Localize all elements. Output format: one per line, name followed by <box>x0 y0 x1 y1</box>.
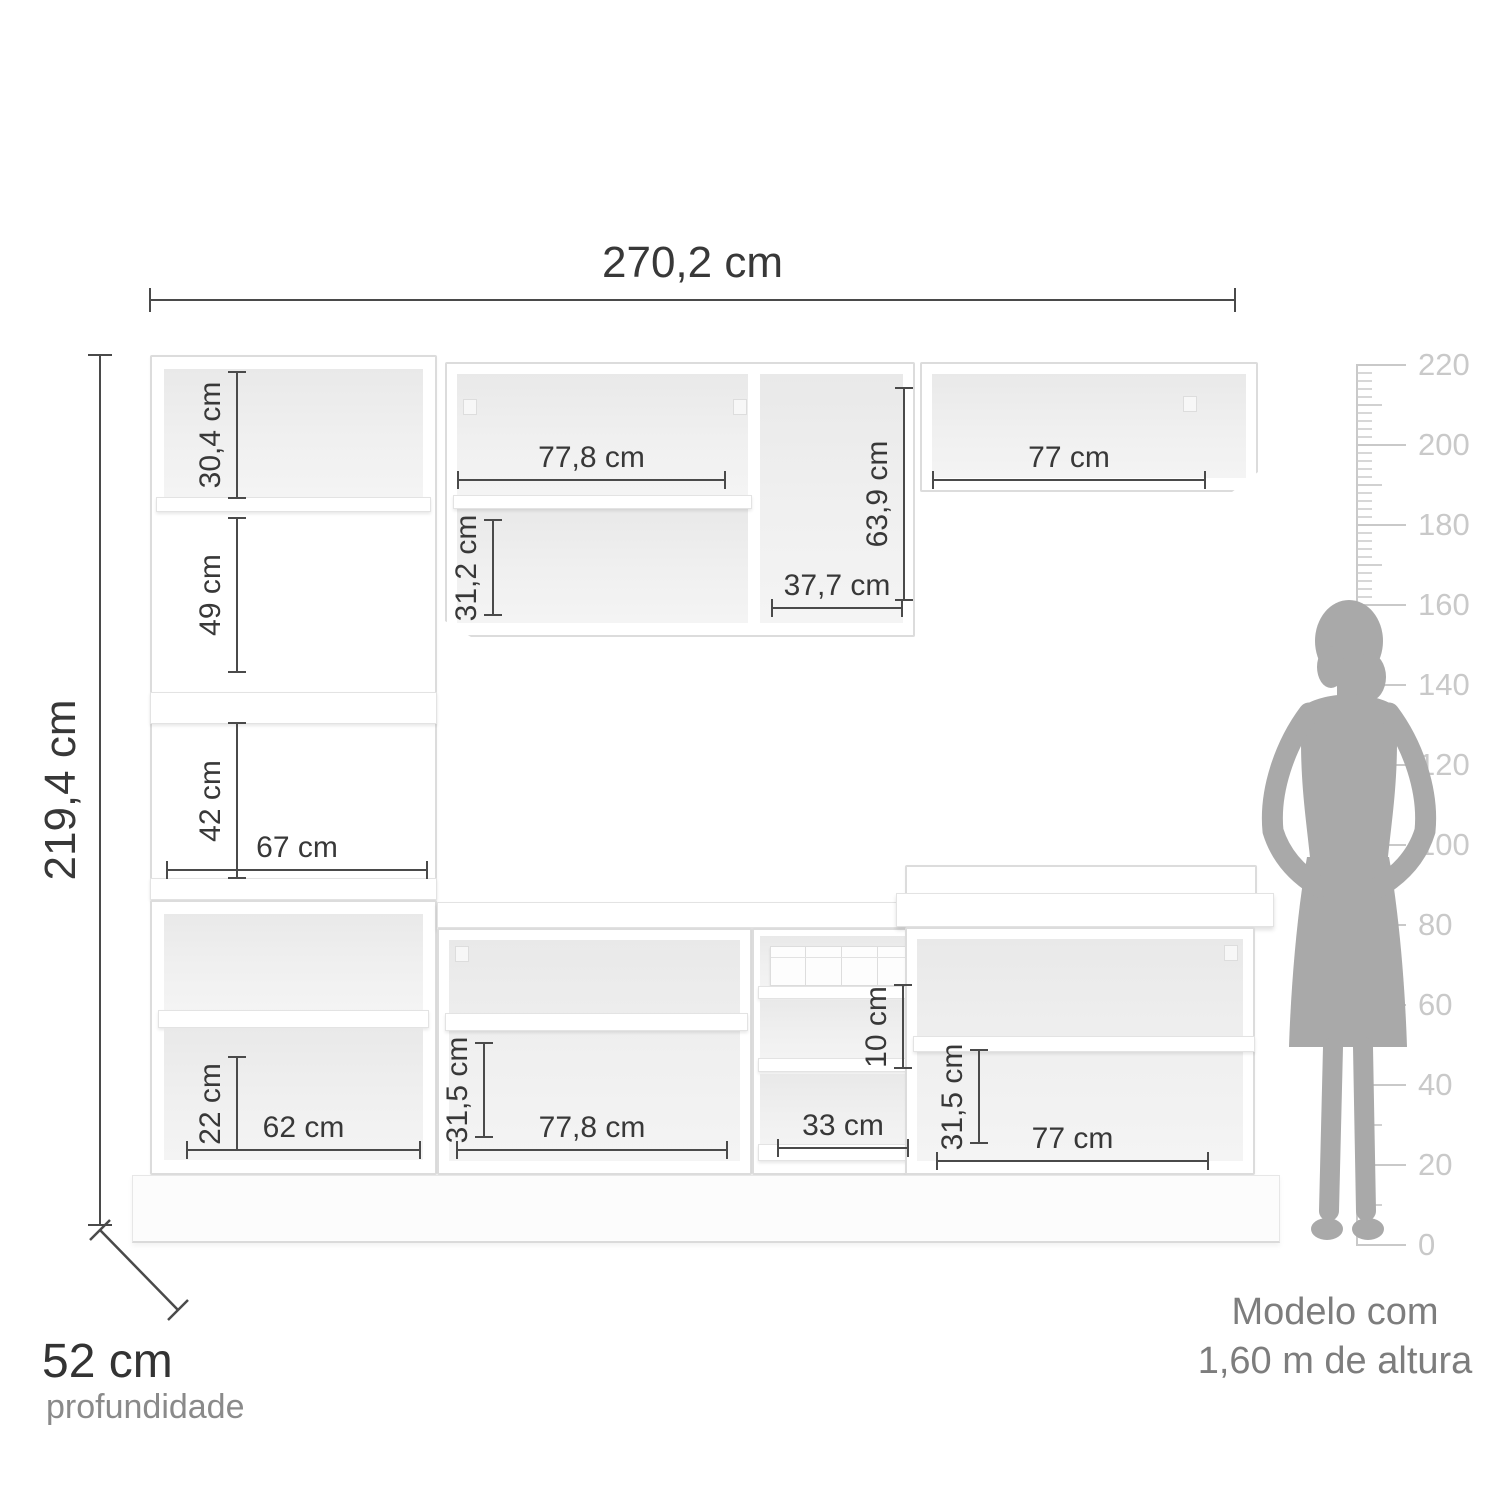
dim-wall-width: 77,8 cm <box>458 479 725 481</box>
dim-base-middle-width: 77,8 cm <box>457 1149 727 1151</box>
dim-label: 33 cm <box>802 1111 884 1141</box>
ruler-tick <box>1356 492 1372 494</box>
tall-cabinet-shelf-1 <box>156 497 431 512</box>
wall-cabinet-center-upper <box>457 374 748 495</box>
model-caption-line2: 1,60 m de altura <box>1145 1337 1500 1386</box>
wall-cabinet-center-shelf <box>453 495 752 509</box>
ruler-tick <box>1356 460 1372 462</box>
hinge-detail <box>463 399 477 415</box>
dim-drawer-height: 10 cm <box>902 985 904 1068</box>
tall-cabinet-niche-bottom <box>150 878 437 900</box>
ruler-tick <box>1356 396 1372 398</box>
dim-base-right-height: 31,5 cm <box>978 1050 980 1143</box>
dim-label: 10 cm <box>862 986 892 1068</box>
hinge-detail <box>1183 396 1197 412</box>
counter-middle <box>437 902 928 928</box>
cutlery-tray <box>770 946 910 986</box>
dim-label: 31,2 cm <box>452 514 482 621</box>
countertop-right <box>896 893 1274 927</box>
dim-tall-middle-height: 49 cm <box>236 518 238 672</box>
model-caption: Modelo com 1,60 m de altura <box>1145 1288 1500 1387</box>
dim-tall-top-height: 30,4 cm <box>236 372 238 498</box>
base-left-upper-opening <box>164 914 423 1010</box>
dim-label: 31,5 cm <box>443 1037 473 1144</box>
product-dimension-diagram: 270,2 cm 219,4 cm 52 cm profundidade 30,… <box>0 0 1500 1500</box>
depth-value: 52 cm <box>42 1334 173 1389</box>
depth-dimension-arrow <box>78 1210 208 1340</box>
dim-label: 77 cm <box>1032 1124 1114 1154</box>
dim-label: 63,9 cm <box>863 441 893 548</box>
dim-label: 22 cm <box>196 1063 226 1145</box>
ruler-tick <box>1356 556 1372 558</box>
ruler-label: 200 <box>1418 427 1470 463</box>
dim-label: 77 cm <box>1028 443 1110 473</box>
dim-label: 77,8 cm <box>539 1113 646 1143</box>
base-left-shelf <box>158 1010 429 1028</box>
ruler-tick <box>1356 468 1372 470</box>
ruler-tick <box>1356 436 1372 438</box>
ruler-tick <box>1356 564 1382 566</box>
ruler-tick <box>1356 412 1372 414</box>
ruler-tick <box>1356 388 1372 390</box>
dim-overall-height: 219,4 cm <box>99 355 101 1225</box>
dim-tall-niche-height: 42 cm <box>236 723 238 878</box>
ruler-label: 220 <box>1418 347 1470 383</box>
ruler-label: 180 <box>1418 507 1470 543</box>
hinge-detail <box>1224 945 1238 961</box>
ruler-tick <box>1356 548 1372 550</box>
dim-drawer-width: 33 cm <box>778 1147 908 1149</box>
hinge-detail <box>455 946 469 962</box>
wall-cabinet-center-lower <box>457 509 748 623</box>
plinth <box>132 1175 1280 1243</box>
ruler-tick <box>1356 588 1372 590</box>
dim-overall-width: 270,2 cm <box>150 299 1235 301</box>
ruler-tick <box>1356 540 1372 542</box>
dim-label: 31,5 cm <box>938 1043 968 1150</box>
dim-wall-door-height: 63,9 cm <box>903 388 905 600</box>
drawer-top-front <box>758 986 922 999</box>
dim-label: 67 cm <box>256 833 338 863</box>
dim-wall-lower-height: 31,2 cm <box>492 520 494 615</box>
overall-width-label: 270,2 cm <box>602 241 783 285</box>
depth-caption: profundidade <box>46 1388 245 1427</box>
ruler-tick <box>1356 532 1372 534</box>
ruler-tick <box>1356 452 1372 454</box>
ruler-tick <box>1356 380 1372 382</box>
model-caption-line1: Modelo com <box>1145 1288 1500 1337</box>
ruler-tick <box>1356 516 1372 518</box>
dim-wall-door-width: 37,7 cm <box>772 607 902 609</box>
ruler-tick <box>1356 372 1372 374</box>
ruler-tick <box>1356 444 1406 446</box>
ruler-tick <box>1356 500 1372 502</box>
dim-base-middle-height: 31,5 cm <box>483 1043 485 1137</box>
ruler-tick <box>1356 404 1382 406</box>
ruler-tick <box>1356 476 1372 478</box>
dim-base-left-height: 22 cm <box>236 1057 238 1150</box>
dim-wall-right-width: 77 cm <box>933 479 1205 481</box>
dim-label: 77,8 cm <box>538 443 645 473</box>
ruler-tick <box>1356 524 1406 526</box>
dim-label: 42 cm <box>196 760 226 842</box>
drawer-middle <box>760 1000 920 1062</box>
ruler-tick <box>1356 580 1372 582</box>
overall-height-label: 219,4 cm <box>39 700 83 881</box>
ruler-tick <box>1356 364 1406 366</box>
dim-label: 37,7 cm <box>784 571 891 601</box>
dim-label: 30,4 cm <box>196 382 226 489</box>
dim-label: 62 cm <box>263 1113 345 1143</box>
backsplash <box>905 865 1257 895</box>
ruler-tick <box>1356 428 1372 430</box>
dim-label: 49 cm <box>196 554 226 636</box>
ruler-tick <box>1356 572 1372 574</box>
dim-base-left-width: 62 cm <box>187 1149 420 1151</box>
tall-cabinet-shelf-2 <box>150 692 437 724</box>
ruler-tick <box>1356 484 1382 486</box>
person-silhouette <box>1245 595 1475 1250</box>
ruler-tick <box>1356 508 1372 510</box>
drawer-middle-front <box>758 1058 922 1072</box>
ruler-tick <box>1356 420 1372 422</box>
dim-base-right-width: 77 cm <box>937 1160 1208 1162</box>
hinge-detail <box>733 399 747 415</box>
dim-tall-niche-width: 67 cm <box>167 869 427 871</box>
base-center-shelf <box>445 1013 748 1031</box>
